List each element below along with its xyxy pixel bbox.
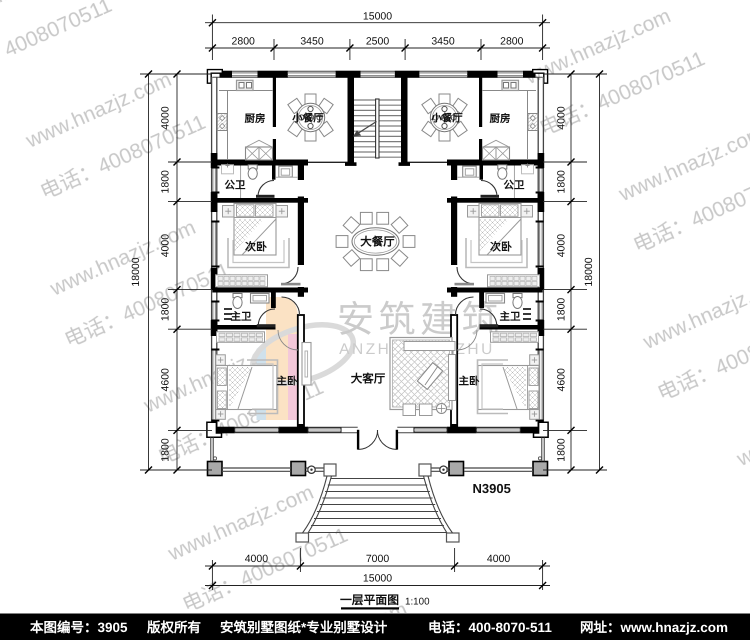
svg-text:4600: 4600 [556, 368, 568, 392]
svg-text:4000: 4000 [556, 234, 568, 258]
svg-text:安筑建筑: 安筑建筑 [337, 299, 503, 340]
svg-text:小餐厅: 小餐厅 [291, 112, 324, 125]
svg-text:4000: 4000 [245, 553, 269, 565]
svg-text:2800: 2800 [500, 36, 524, 48]
svg-text:1800: 1800 [556, 438, 568, 462]
svg-text:1800: 1800 [556, 298, 568, 322]
svg-text:版权所有: 版权所有 [147, 620, 201, 635]
svg-text:2500: 2500 [366, 36, 390, 48]
svg-text:公卫: 公卫 [225, 180, 246, 192]
svg-text:一层平面图: 一层平面图 [340, 593, 399, 607]
svg-text:4000: 4000 [556, 106, 568, 130]
svg-text:电话：400-8070-511: 电话：400-8070-511 [428, 620, 552, 635]
svg-text:4000: 4000 [160, 234, 172, 258]
svg-text:1800: 1800 [556, 170, 568, 194]
svg-text:次卧: 次卧 [490, 241, 512, 254]
svg-text:18000: 18000 [583, 257, 595, 286]
svg-text:1:100: 1:100 [405, 597, 430, 608]
svg-text:N3905: N3905 [473, 481, 511, 496]
svg-text:安筑别墅图纸*专业别墅设计: 安筑别墅图纸*专业别墅设计 [220, 620, 388, 635]
svg-text:公卫: 公卫 [504, 180, 525, 192]
svg-text:1800: 1800 [160, 298, 172, 322]
svg-text:3450: 3450 [431, 36, 455, 48]
svg-text:本图编号：3905: 本图编号：3905 [30, 620, 128, 635]
svg-text:次卧: 次卧 [245, 241, 267, 254]
svg-text:厨房: 厨房 [490, 112, 511, 125]
svg-text:大餐厅: 大餐厅 [360, 236, 395, 249]
svg-text:7000: 7000 [366, 553, 390, 565]
svg-text:主卫: 主卫 [231, 310, 252, 323]
svg-text:网址：www.hnazjz.com: 网址：www.hnazjz.com [580, 620, 728, 635]
svg-text:18000: 18000 [130, 257, 142, 286]
svg-text:小餐厅: 小餐厅 [430, 112, 463, 125]
svg-text:15000: 15000 [363, 11, 392, 23]
svg-text:15000: 15000 [363, 573, 392, 585]
svg-text:大客厅: 大客厅 [351, 372, 386, 386]
svg-text:1800: 1800 [160, 438, 172, 462]
svg-text:4000: 4000 [487, 553, 511, 565]
svg-text:2800: 2800 [232, 36, 256, 48]
svg-text:主卧: 主卧 [277, 375, 298, 388]
svg-text:厨房: 厨房 [245, 112, 266, 125]
svg-text:1800: 1800 [160, 170, 172, 194]
svg-text:3450: 3450 [300, 36, 324, 48]
svg-text:主卫: 主卫 [500, 310, 521, 323]
svg-text:4000: 4000 [160, 106, 172, 130]
svg-text:主卧: 主卧 [459, 375, 480, 388]
svg-text:4600: 4600 [160, 368, 172, 392]
